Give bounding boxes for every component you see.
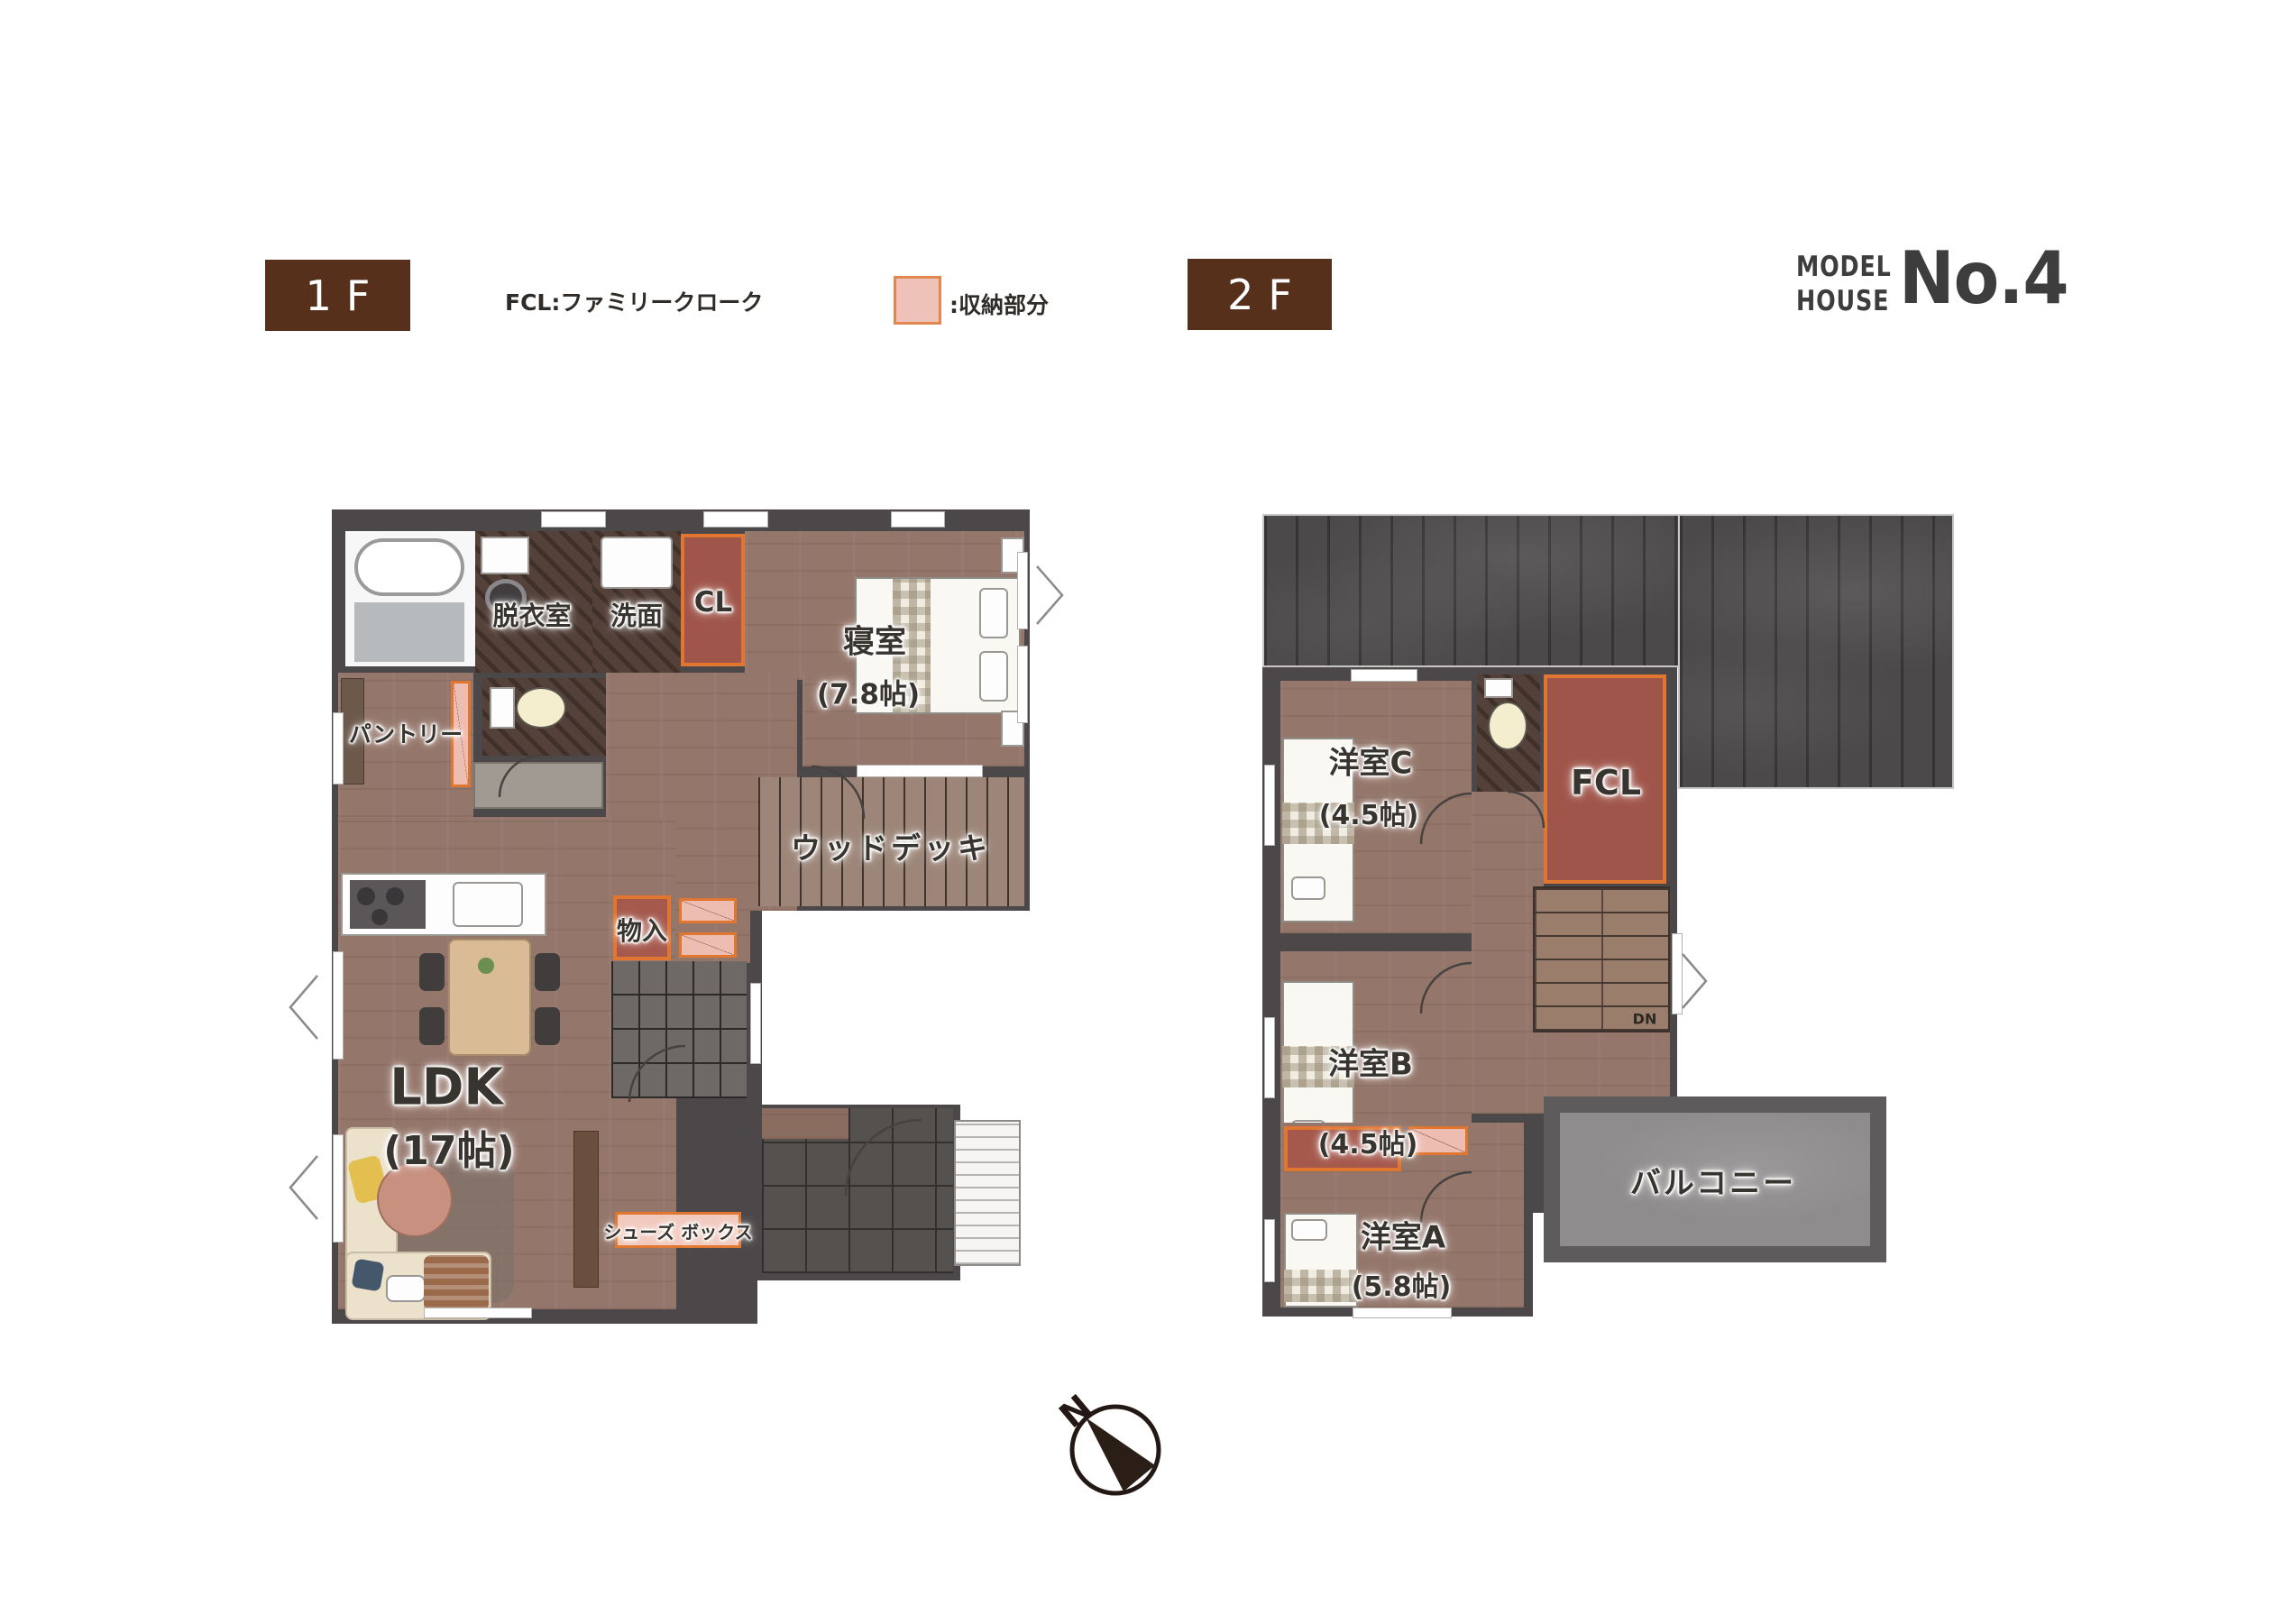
room-a-size: (5.8帖) — [1352, 1264, 1452, 1304]
room-c-size: (4.5帖) — [1319, 793, 1419, 832]
stairs-down-label: DN — [1633, 1011, 1657, 1028]
room-b-size: (4.5帖) — [1318, 1122, 1418, 1161]
compass-icon: N — [1046, 1380, 1199, 1533]
floorplan-canvas: 1F FCL:ファミリークローク :収納部分 2F MODEL HOUSE No… — [0, 0, 2293, 1624]
balcony-label: バルコニー — [1630, 1159, 1796, 1203]
room-b-label: 洋室B — [1328, 1040, 1413, 1084]
room-c-label: 洋室C — [1329, 739, 1413, 783]
fcl-label: FCL — [1571, 763, 1641, 803]
room-a-label: 洋室A — [1361, 1213, 1445, 1257]
